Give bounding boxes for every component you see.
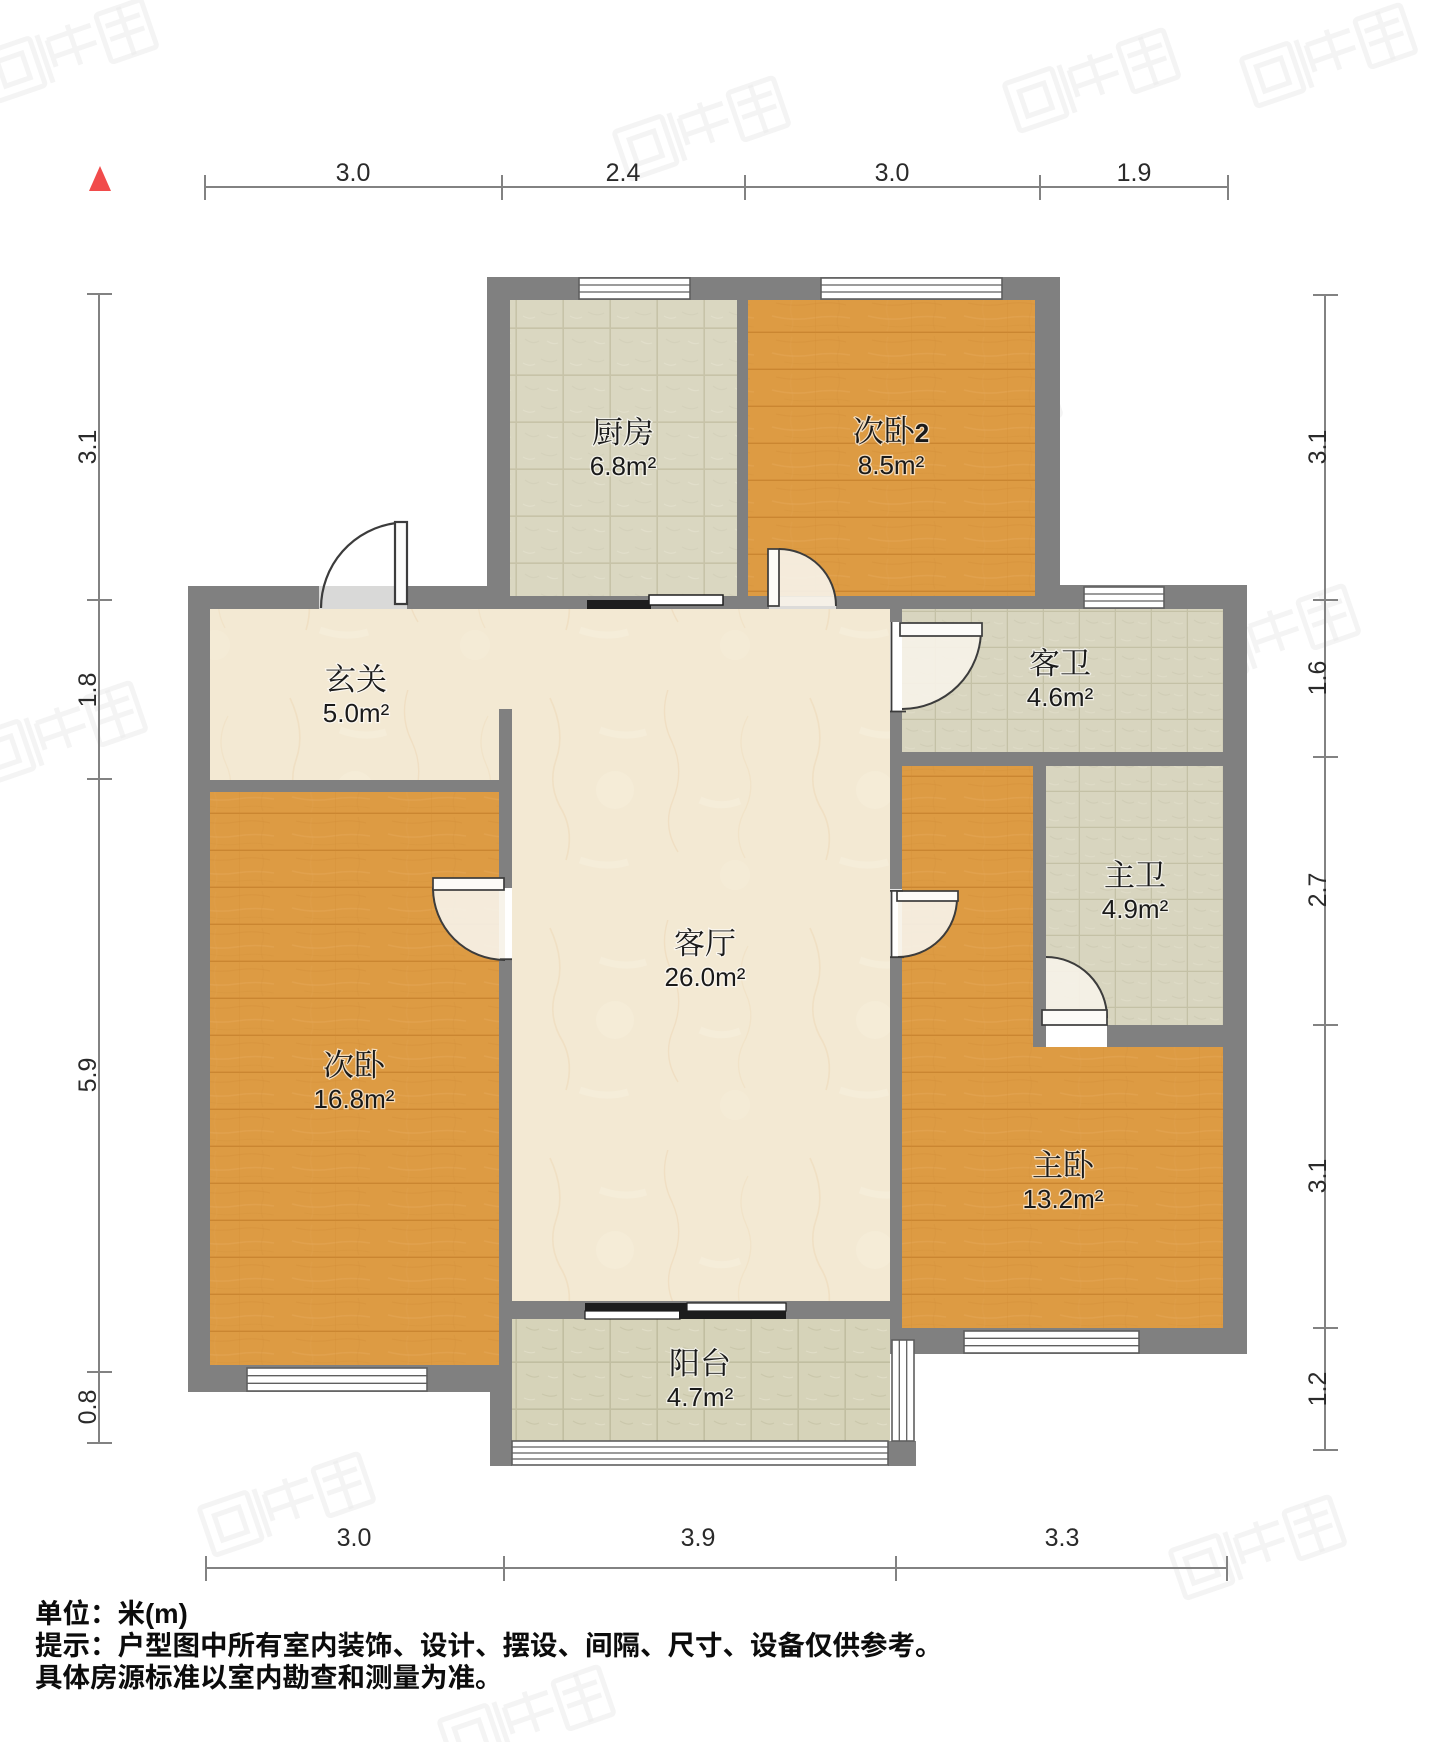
svg-text:5.9: 5.9 [74,1058,102,1093]
svg-text:13.2m²: 13.2m² [1023,1184,1104,1214]
svg-text:6.8m²: 6.8m² [590,451,657,481]
svg-text:16.8m²: 16.8m² [314,1084,395,1114]
svg-text:3.1: 3.1 [74,430,102,465]
svg-text:5.0m²: 5.0m² [323,698,390,728]
svg-text:2: 2 [915,418,929,448]
svg-text:1.2: 1.2 [1304,1372,1332,1407]
svg-text:4.7m²: 4.7m² [667,1382,734,1412]
svg-text:8.5m²: 8.5m² [858,450,925,480]
svg-text:3.0: 3.0 [337,1524,372,1552]
svg-text:1.9: 1.9 [1117,159,1152,187]
svg-text:2.4: 2.4 [606,159,641,187]
svg-text:1.8: 1.8 [74,673,102,708]
svg-text:0.8: 0.8 [74,1390,102,1425]
svg-text:3.0: 3.0 [336,159,371,187]
svg-text:3.1: 3.1 [1304,1159,1332,1194]
svg-text:26.0m²: 26.0m² [665,962,746,992]
svg-text:4.6m²: 4.6m² [1027,682,1094,712]
svg-text:4.9m²: 4.9m² [1102,894,1169,924]
svg-text:3.1: 3.1 [1304,430,1332,465]
svg-text:2.7: 2.7 [1304,873,1332,908]
svg-text:(m): (m) [145,1598,188,1629]
svg-text:3.3: 3.3 [1045,1524,1080,1552]
svg-text:3.9: 3.9 [681,1524,716,1552]
svg-text:1.6: 1.6 [1304,661,1332,696]
svg-text:3.0: 3.0 [875,159,910,187]
